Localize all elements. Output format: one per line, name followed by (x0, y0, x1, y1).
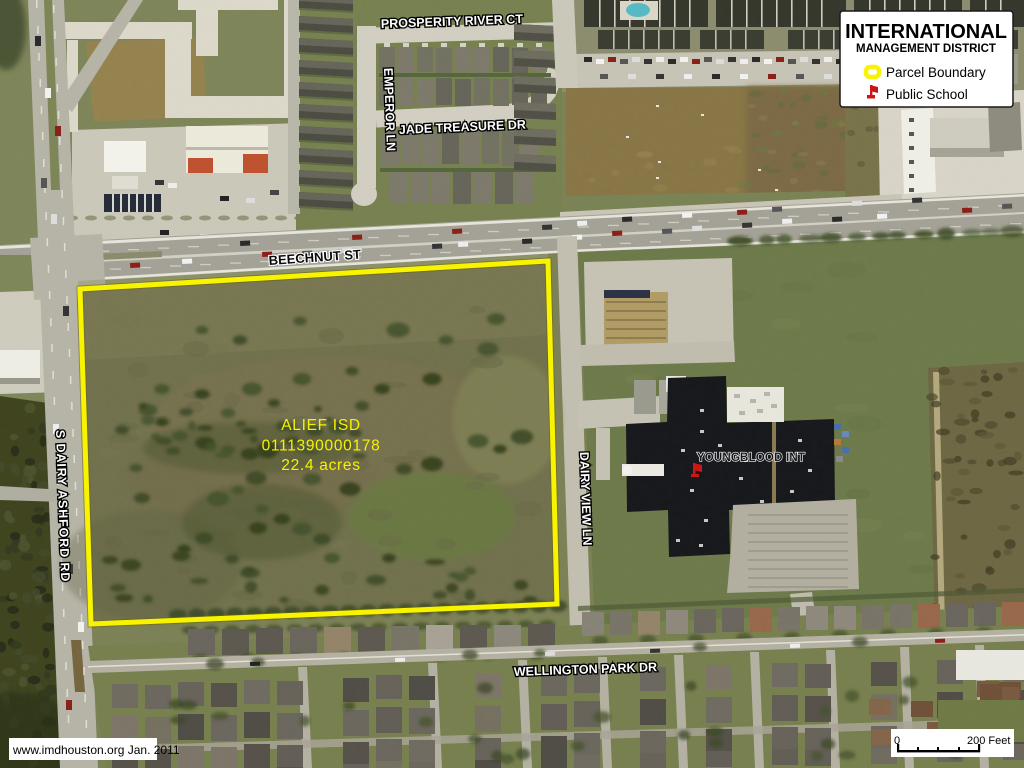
svg-text:0111390000178: 0111390000178 (262, 438, 381, 455)
svg-text:INTERNATIONAL: INTERNATIONAL (845, 21, 1007, 43)
svg-text:ALIEF ISD: ALIEF ISD (281, 417, 361, 434)
svg-text:Parcel Boundary: Parcel Boundary (886, 65, 986, 80)
svg-text:Public School: Public School (886, 87, 968, 102)
svg-text:200 Feet: 200 Feet (967, 735, 1010, 747)
svg-text:22.4 acres: 22.4 acres (281, 457, 360, 474)
svg-text:www.imdhouston.org Jan. 2011: www.imdhouston.org Jan. 2011 (12, 743, 180, 757)
svg-text:MANAGEMENT DISTRICT: MANAGEMENT DISTRICT (856, 43, 996, 55)
svg-text:EMPEROR LN: EMPEROR LN (381, 68, 398, 152)
